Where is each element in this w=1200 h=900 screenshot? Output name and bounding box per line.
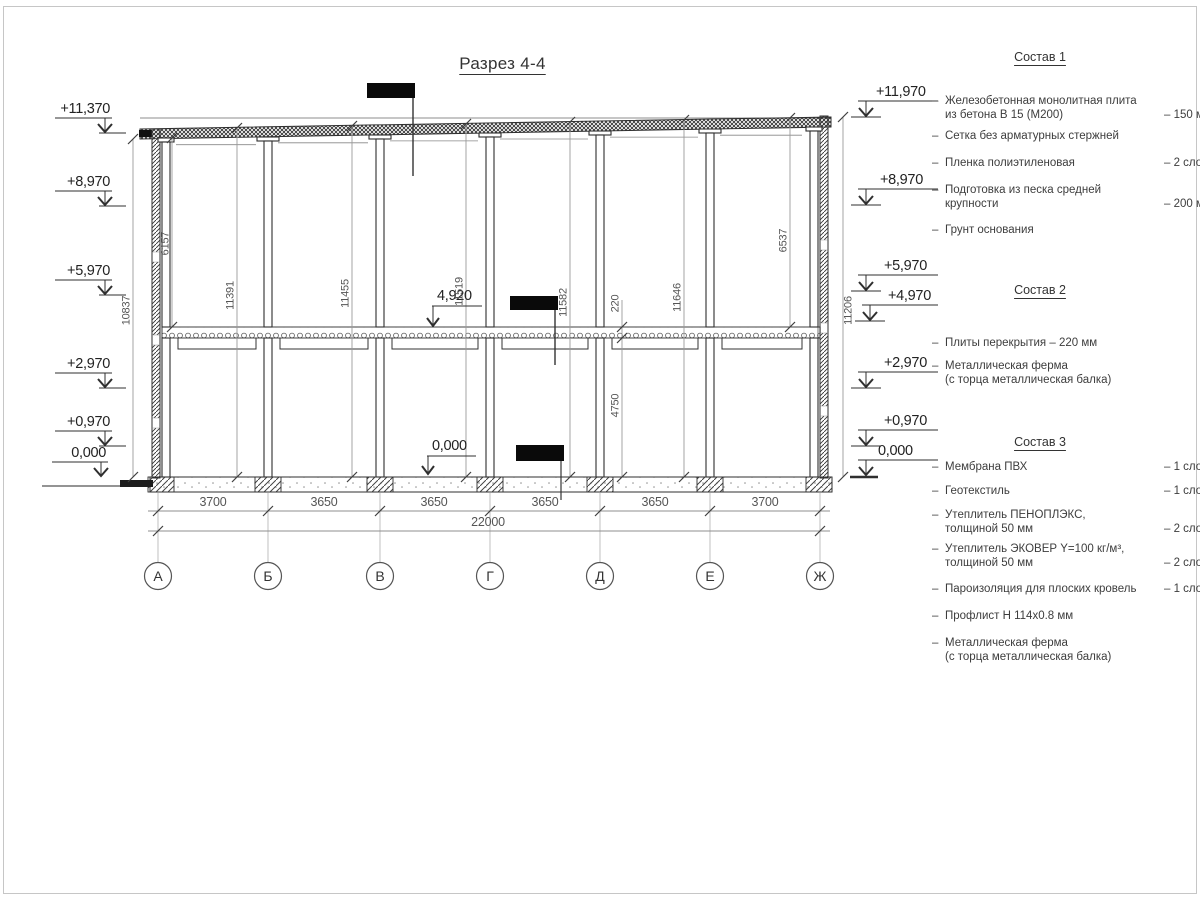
parapet-block xyxy=(139,130,152,137)
legend-item-value: – 1 слой xyxy=(1164,461,1200,475)
elevation-label-inner: 0,000 xyxy=(432,438,467,454)
span-dim-label: 3650 xyxy=(404,495,464,509)
legend-item: –Профлист Н 114х0.8 мм xyxy=(932,610,1073,624)
materials-legend: Состав 1 –Железобетонная монолитная плит… xyxy=(930,0,1200,700)
blind-area-left xyxy=(120,480,153,487)
vertical-dim-label: 4750 xyxy=(610,376,623,436)
legend-item: –Металлическая ферма (с торца металличес… xyxy=(932,360,1111,387)
legend-item: –Сетка без арматурных стержней xyxy=(932,130,1119,144)
redacted-stamp-middle xyxy=(510,296,558,310)
redacted-stamp-top xyxy=(367,83,415,98)
legend-item: –Подготовка из песка средней крупности xyxy=(932,184,1101,211)
legend-section-title: Состав 2 xyxy=(990,283,1090,297)
ground-slab xyxy=(42,477,832,492)
vertical-dim-label: 6157 xyxy=(160,214,173,274)
vertical-dim-label: 6537 xyxy=(778,211,791,271)
legend-item-value: – 1 слой xyxy=(1164,583,1200,597)
vertical-dim-label: 11519 xyxy=(454,262,467,322)
axis-bubble-label: Е xyxy=(695,568,725,584)
axis-bubble-label: Б xyxy=(253,568,283,584)
left-wall xyxy=(152,129,162,478)
legend-section-title: Состав 3 xyxy=(990,435,1090,449)
span-dim-label: 3650 xyxy=(294,495,354,509)
vertical-dim-label: 220 xyxy=(610,274,623,334)
drawing-title: Разрез 4-4 xyxy=(420,54,585,74)
axis-bubble-label: Г xyxy=(475,568,505,584)
axis-bubble-label: Ж xyxy=(805,568,835,584)
vertical-dim-label: 11206 xyxy=(843,281,856,341)
elevation-label-left: +11,370 xyxy=(40,101,110,117)
upper-floor-columns xyxy=(158,127,822,327)
legend-item-value: – 2 слоя xyxy=(1164,157,1200,171)
legend-item: –Плиты перекрытия – 220 мм xyxy=(932,337,1097,351)
elevation-label-left: +5,970 xyxy=(40,263,110,279)
legend-item: –Пароизоляция для плоских кровель xyxy=(932,583,1137,597)
elevation-label-left: +0,970 xyxy=(40,414,110,430)
vertical-dim-label: 11582 xyxy=(558,273,571,333)
axis-bubble-label: В xyxy=(365,568,395,584)
span-dim-label: 3650 xyxy=(515,495,575,509)
span-dim-label: 3650 xyxy=(625,495,685,509)
axis-bubble-label: Д xyxy=(585,568,615,584)
legend-item: –Грунт основания xyxy=(932,224,1034,238)
legend-item: –Пленка полиэтиленовая xyxy=(932,157,1075,171)
span-dim-label: 3700 xyxy=(735,495,795,509)
legend-item-value: – 2 слоя xyxy=(1164,557,1200,571)
legend-item: –Утеплитель ПЕНОПЛЭКС, толщиной 50 мм xyxy=(932,509,1086,536)
legend-item-value: – 150 мм xyxy=(1164,109,1200,123)
legend-item: –Геотекстиль xyxy=(932,485,1010,499)
drawing-sheet: Разрез 4-4 +11,370 +8,970 +5,970 +2,970 … xyxy=(0,0,1200,900)
legend-item-value: – 1 слой xyxy=(1164,485,1200,499)
lower-floor-columns xyxy=(162,338,818,477)
elevation-label-left: 0,000 xyxy=(36,445,106,461)
legend-item: –Металлическая ферма (с торца металличес… xyxy=(932,637,1111,664)
span-dim-label: 3700 xyxy=(183,495,243,509)
interfloor-slab xyxy=(162,327,820,338)
legend-section-title: Состав 1 xyxy=(990,50,1090,64)
total-dim-label: 22000 xyxy=(458,515,518,529)
legend-item-value: – 200 мм xyxy=(1164,198,1200,212)
legend-item: –Утеплитель ЭКОВЕР Y=100 кг/м³, толщиной… xyxy=(932,543,1124,570)
vertical-dim-label: 11391 xyxy=(225,266,238,326)
vertical-dim-label: 11455 xyxy=(340,264,353,324)
vertical-dim-label: 11646 xyxy=(672,268,685,328)
legend-item-value: – 2 слоя xyxy=(1164,523,1200,537)
axis-bubble-label: А xyxy=(143,568,173,584)
vertical-dim-label: 10837 xyxy=(121,281,134,341)
legend-item: –Мембрана ПВХ xyxy=(932,461,1027,475)
legend-item: –Железобетонная монолитная плита из бето… xyxy=(932,95,1137,122)
redacted-stamp-bottom xyxy=(516,445,564,461)
elevation-label-left: +2,970 xyxy=(40,356,110,372)
elevation-label-left: +8,970 xyxy=(40,174,110,190)
right-wall xyxy=(818,116,828,478)
